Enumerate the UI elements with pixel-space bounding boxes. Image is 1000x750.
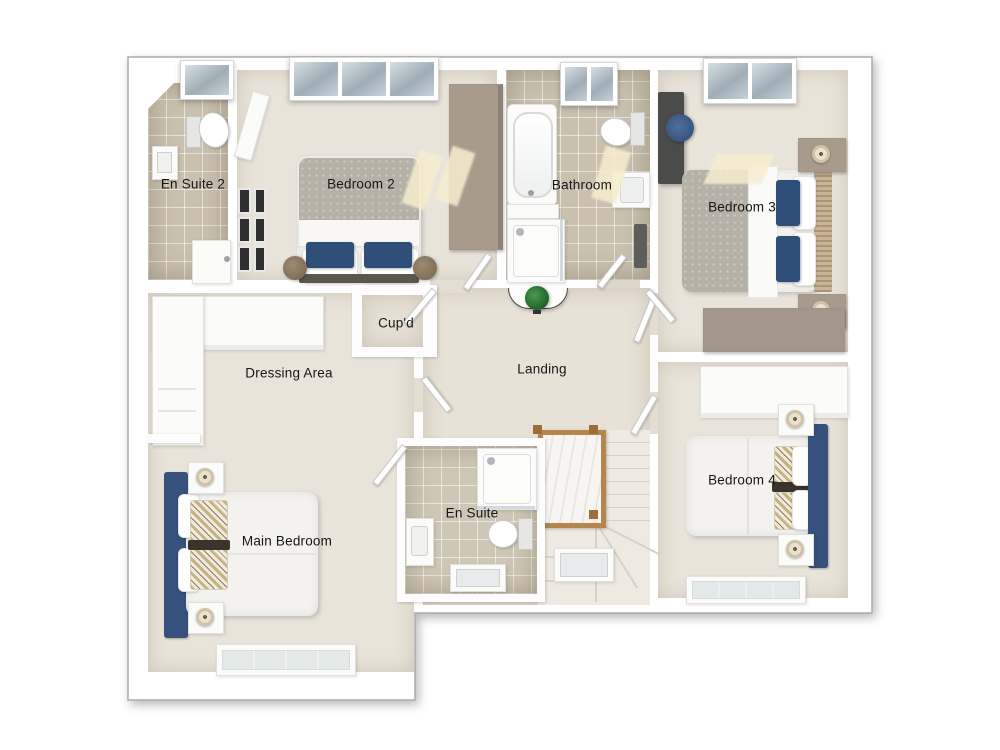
half-wall — [507, 204, 559, 219]
pillow-navy — [776, 236, 800, 282]
newel-post — [533, 425, 542, 434]
wardrobe-white — [700, 366, 848, 418]
room-label-cupboard: Cup'd — [378, 316, 414, 330]
pillow-zigzag — [190, 548, 228, 590]
room-label-bedroom-3: Bedroom 3 — [708, 200, 776, 214]
room-label-bathroom: Bathroom — [552, 178, 612, 192]
shower-glass — [560, 219, 563, 281]
shower-head — [487, 457, 495, 465]
toilet — [488, 520, 518, 548]
wall-stub — [148, 434, 200, 443]
rattan-headboard — [814, 170, 832, 292]
skylight-window — [289, 57, 439, 101]
bathtub-inner — [513, 112, 553, 198]
sink-basin — [411, 526, 428, 556]
newel-post — [589, 425, 598, 434]
floor-plan-canvas: En Suite 2 Bedroom 2 Bathroom Bedroom 3 … — [0, 0, 1000, 750]
table-lamp — [196, 468, 214, 486]
pillow-navy — [306, 242, 354, 268]
door-gap-dressing — [414, 378, 423, 412]
en-suite-floor-window-glass — [456, 569, 500, 587]
bed-throw — [682, 170, 750, 292]
newel-post — [589, 510, 598, 519]
room-label-en-suite: En Suite — [446, 506, 499, 520]
dark-throw — [188, 540, 230, 550]
table-lamp — [786, 540, 804, 558]
bath-tap — [528, 190, 534, 196]
sink-basin — [620, 177, 644, 203]
picture-frames — [238, 188, 266, 272]
shower-unit — [192, 240, 231, 284]
toilet-cistern — [630, 112, 645, 146]
table-lamp — [786, 410, 804, 428]
wardrobe-shelf — [158, 410, 196, 412]
table-lamp — [196, 608, 214, 626]
shower-head — [516, 228, 524, 236]
plant-pot — [533, 310, 541, 314]
room-label-landing: Landing — [517, 362, 566, 376]
desk-chair — [666, 114, 694, 142]
table-lamp — [812, 145, 830, 163]
pillow-navy — [776, 180, 800, 226]
towel-radiator — [634, 224, 647, 268]
pillow-navy — [364, 242, 412, 268]
ottoman — [703, 308, 845, 352]
bedside-stool — [413, 256, 437, 280]
skylight-window — [703, 58, 797, 104]
plant-icon — [525, 286, 549, 310]
toilet-cistern — [518, 518, 533, 550]
wardrobe-shelf — [158, 388, 196, 390]
window-panes — [692, 581, 800, 599]
bed-runner — [748, 166, 778, 298]
bedside-stool — [283, 256, 307, 280]
pillow-zigzag — [190, 500, 228, 542]
skylight-window — [560, 62, 618, 106]
landing-floor-window-glass — [560, 553, 608, 577]
room-label-bedroom-4: Bedroom 4 — [708, 473, 776, 487]
room-label-en-suite-2: En Suite 2 — [161, 177, 225, 191]
room-label-main-bedroom: Main Bedroom — [242, 534, 332, 548]
room-label-dressing-area: Dressing Area — [245, 366, 332, 380]
headboard — [299, 274, 419, 283]
fitted-wardrobe-left — [152, 296, 204, 446]
window-panes — [222, 650, 350, 670]
room-label-bedroom-2: Bedroom 2 — [327, 177, 395, 191]
chrome-fitting — [224, 256, 230, 262]
sink-basin — [157, 152, 172, 173]
skylight-window — [180, 60, 234, 100]
